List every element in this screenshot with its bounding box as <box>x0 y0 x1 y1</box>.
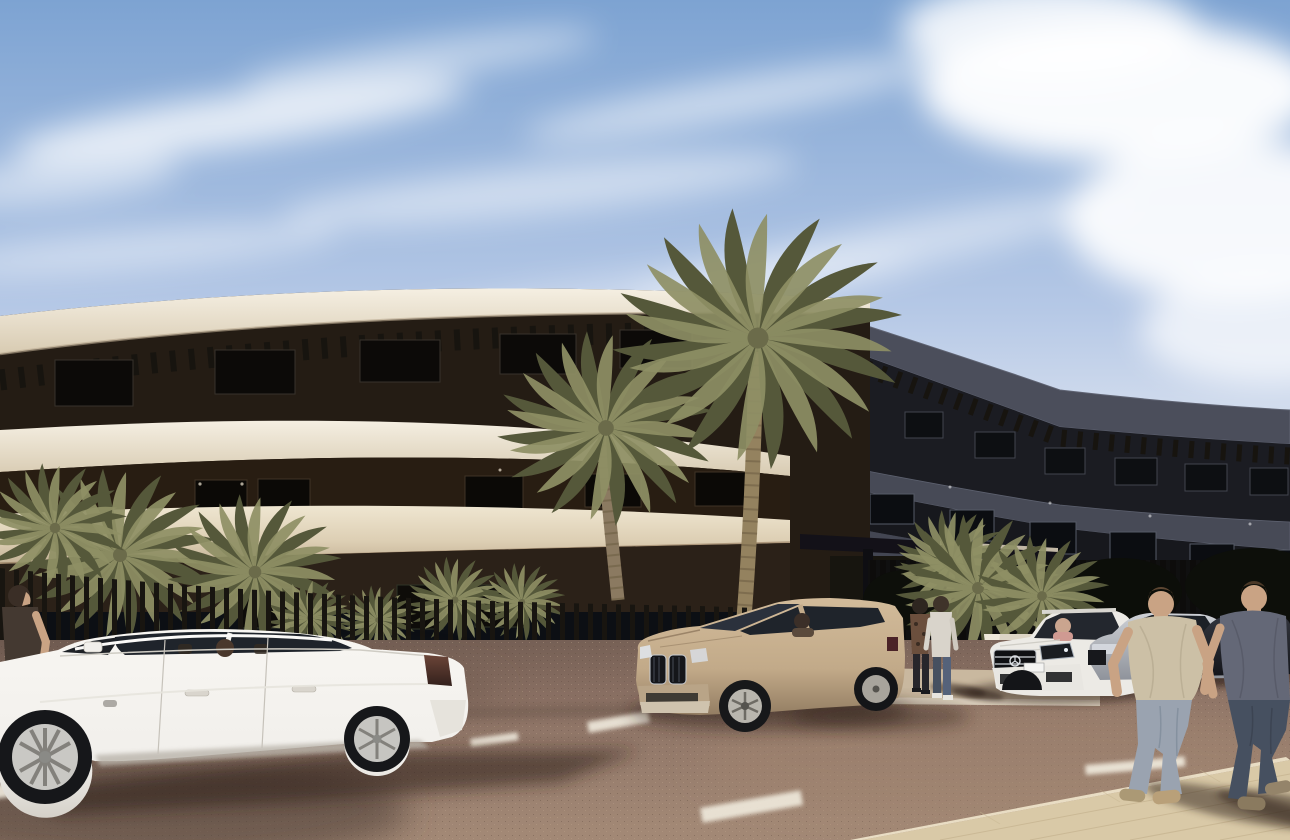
suv-headlight <box>640 645 652 659</box>
sedan-front-wheel <box>0 710 92 804</box>
suv-headlight <box>690 648 708 663</box>
suv-driver <box>794 613 810 629</box>
suv-taillight <box>887 637 898 651</box>
mercedes-headlight <box>1040 643 1074 660</box>
sedan-rear-wheel <box>344 706 410 772</box>
architectural-render-scene: TO <box>0 0 1290 840</box>
sedan-driver <box>216 639 234 657</box>
mercedes-driver <box>1055 618 1071 634</box>
sedan-taillight <box>424 655 452 686</box>
